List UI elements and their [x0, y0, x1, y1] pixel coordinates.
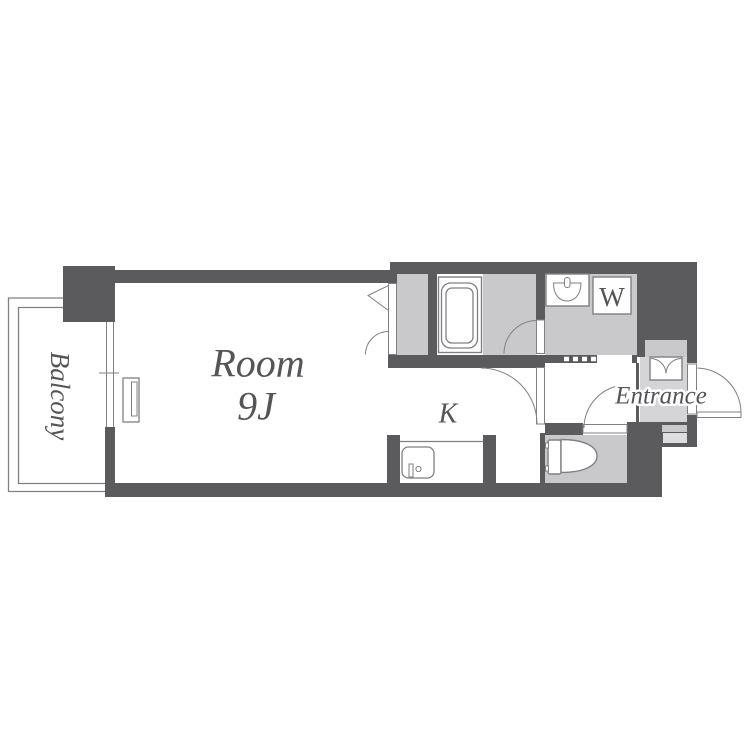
wall-segment: [536, 274, 545, 320]
closet-area: [397, 274, 428, 355]
wall-segment: [63, 270, 397, 283]
room-side-unit: [123, 378, 139, 422]
faucet-icon: [565, 278, 571, 288]
faucet-icon: [409, 464, 413, 477]
wall-segment: [388, 355, 545, 368]
balcony-label: Balcony: [45, 352, 75, 440]
toilet-tank: [548, 440, 561, 474]
drain-icon: [416, 466, 421, 471]
toilet-tank-tab: [546, 466, 549, 471]
toilet-tank-tab: [546, 443, 549, 448]
entrance-step: [662, 425, 687, 432]
room-size-label: 9J: [237, 384, 277, 429]
wall-segment: [390, 262, 637, 274]
washer-label: W: [599, 282, 625, 312]
wall-segment: [428, 274, 437, 355]
kitchen-label: K: [438, 399, 459, 430]
closet-door: [366, 284, 397, 355]
washroom-opening: [597, 355, 632, 363]
side-unit-inner: [132, 382, 138, 416]
door-swing-arc: [481, 368, 537, 424]
wall-segment: [540, 433, 545, 483]
bathroom: [439, 277, 482, 353]
shoe-cabinet-icon: [650, 357, 682, 380]
door-leaf: [389, 284, 397, 355]
folding-door-icon: [368, 286, 389, 311]
door-leaf: [583, 425, 627, 434]
room-label: Room: [210, 341, 304, 386]
door-leaf: [537, 320, 545, 354]
window: [99, 322, 119, 427]
door-swing-arc: [366, 332, 389, 355]
floor-plan-drawing: W Room 9J K Balcony Entrance: [0, 0, 750, 750]
door-leaf: [697, 412, 741, 418]
shoe-cabinet-top: [645, 340, 687, 357]
wall-segment: [687, 340, 697, 363]
entrance-label: Entrance: [614, 383, 707, 410]
wall-segment: [637, 340, 645, 357]
wall-segment: [632, 355, 637, 363]
entrance-step: [663, 433, 687, 443]
wall-segment: [387, 435, 400, 483]
wall-segment: [483, 435, 496, 483]
kitchen-door: [481, 368, 545, 425]
wall-segment: [545, 355, 562, 363]
shoe-cabinet: [650, 357, 682, 380]
kitchen-counter: [400, 442, 483, 479]
wall-segment: [545, 423, 583, 435]
bath-vestibule-area: [483, 274, 536, 355]
floor-plan: W Room 9J K Balcony Entrance: [0, 0, 750, 750]
wall-segment: [637, 262, 697, 340]
wall-segment: [105, 483, 662, 497]
kitchen-sink-icon: [402, 447, 434, 478]
wall-segment: [627, 447, 662, 497]
door-leaf: [537, 368, 545, 425]
